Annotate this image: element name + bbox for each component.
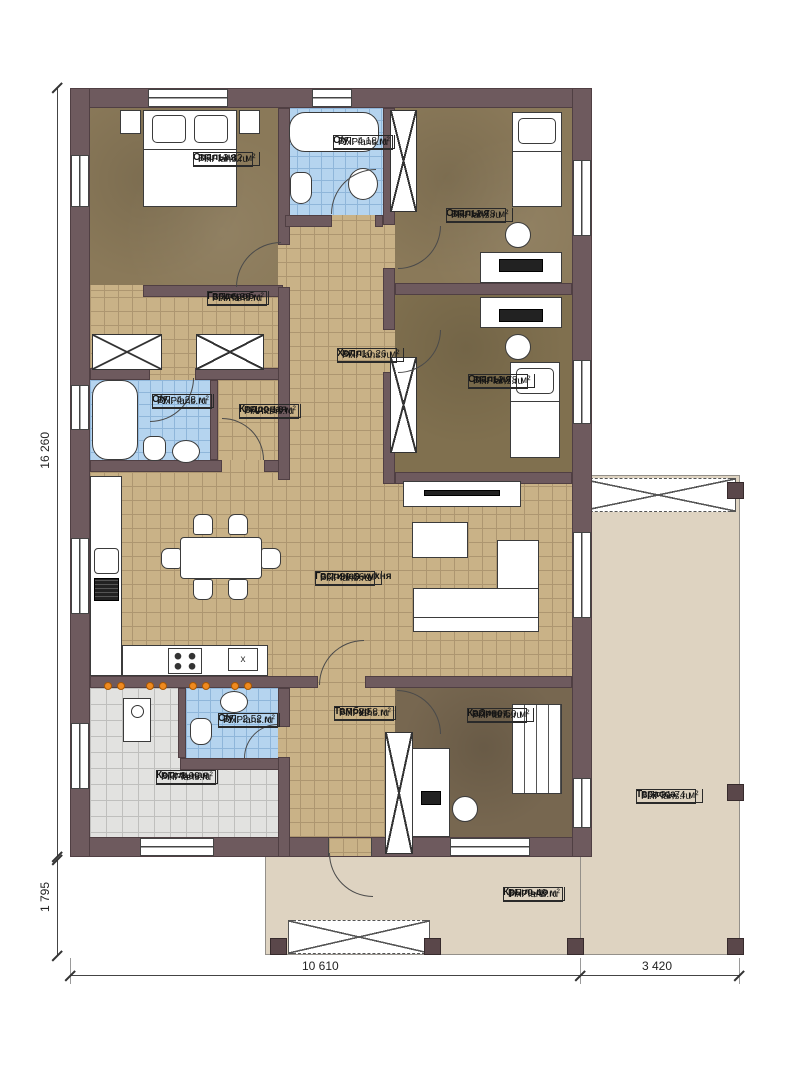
room-area: ВП: 2,52 м² bbox=[218, 713, 280, 727]
wall-storage-divider bbox=[210, 380, 218, 460]
wall-bathtop-hall bbox=[285, 215, 332, 227]
wall-vestibule-left bbox=[278, 757, 290, 857]
desk bbox=[480, 252, 562, 283]
heating-manifold-icon bbox=[231, 682, 239, 690]
chair bbox=[452, 796, 478, 822]
kitchen-counter bbox=[90, 476, 122, 676]
room-area: ВП: 2,16 м² bbox=[239, 404, 301, 418]
toilet bbox=[190, 718, 212, 745]
terrace-floor bbox=[578, 475, 740, 955]
window bbox=[71, 155, 89, 207]
heating-manifold-icon bbox=[146, 682, 154, 690]
room-area: ВП: 8,99 м² bbox=[156, 770, 218, 784]
window bbox=[148, 89, 228, 107]
chair bbox=[228, 579, 248, 600]
chair bbox=[505, 222, 531, 248]
desk bbox=[480, 297, 562, 328]
wall-hall-right bbox=[383, 268, 395, 330]
window bbox=[573, 360, 591, 424]
chair bbox=[161, 548, 181, 569]
tv-console bbox=[403, 481, 521, 507]
bathtub bbox=[92, 380, 138, 460]
room-area: ВП: 10,50 м² bbox=[467, 708, 534, 722]
room-area: ВП: 8,58 м² bbox=[334, 706, 396, 720]
room-area: ВП: 12,78 м² bbox=[446, 208, 513, 222]
dim-line-bottom bbox=[70, 975, 740, 976]
terrace-door bbox=[573, 532, 591, 618]
porch-roof-outline bbox=[288, 920, 430, 954]
heating-manifold-icon bbox=[159, 682, 167, 690]
dim-extension bbox=[580, 958, 581, 984]
toilet bbox=[290, 172, 312, 204]
window bbox=[71, 385, 89, 430]
room-area: ВП: 4,18 м² bbox=[333, 135, 395, 149]
chair bbox=[505, 334, 531, 360]
dim-label-left: 16 260 bbox=[36, 432, 54, 469]
floor-plan: x Спальня FixPlans.ru bbox=[0, 0, 792, 1080]
wall-bathtop-hall bbox=[375, 215, 383, 227]
wardrobe-cabinet bbox=[196, 334, 264, 370]
dim-label-bottom-left: 1 795 bbox=[36, 882, 54, 912]
heating-manifold-icon bbox=[117, 682, 125, 690]
heating-manifold-icon bbox=[202, 682, 210, 690]
porch-column bbox=[424, 938, 441, 955]
wall-hall-left bbox=[278, 287, 290, 480]
wardrobe-cabinet bbox=[92, 334, 162, 370]
sink bbox=[172, 440, 200, 463]
heating-manifold-icon bbox=[244, 682, 252, 690]
dim-extension bbox=[739, 958, 740, 984]
sink bbox=[220, 691, 248, 713]
dim-line-left bbox=[57, 88, 58, 857]
room-area: ВП: 39,56 м² bbox=[315, 571, 382, 585]
window bbox=[71, 538, 89, 614]
desk bbox=[412, 748, 450, 837]
wardrobe-cabinet bbox=[390, 110, 417, 212]
bed bbox=[512, 112, 562, 207]
nightstand bbox=[239, 110, 260, 134]
chair bbox=[261, 548, 281, 569]
wall-living-bottomrow bbox=[365, 676, 572, 688]
room-area: ВП: 12,78 м² bbox=[468, 374, 535, 388]
appliance-x: x bbox=[228, 648, 258, 671]
porch-column bbox=[270, 938, 287, 955]
room-area: ВП: 4,28 м² bbox=[152, 394, 214, 408]
dining-table bbox=[180, 537, 262, 579]
window bbox=[140, 838, 214, 856]
heating-manifold-icon bbox=[189, 682, 197, 690]
heating-manifold-icon bbox=[104, 682, 112, 690]
dim-label-bottom-right: 3 420 bbox=[640, 959, 674, 973]
dim-line-bottom-left bbox=[57, 860, 58, 956]
wall-bathbottom bbox=[180, 758, 285, 770]
kitchen-sink bbox=[94, 548, 119, 574]
kitchen-appliance bbox=[94, 578, 119, 601]
terrace-column bbox=[727, 482, 744, 499]
room-area: ВП: 10,26 м² bbox=[337, 348, 404, 362]
chair bbox=[193, 579, 213, 600]
room-area: ВП: 31,74 м² bbox=[636, 789, 703, 803]
nightstand bbox=[120, 110, 141, 134]
wall-boiler-bath-divider bbox=[178, 688, 186, 758]
dim-label-bottom-main: 10 610 bbox=[300, 959, 341, 973]
room-area: ВП: 13,32 м² bbox=[193, 152, 260, 166]
wall-bedrooms-right bbox=[395, 283, 572, 295]
stove bbox=[168, 648, 202, 674]
porch-column bbox=[567, 938, 584, 955]
boiler bbox=[123, 698, 151, 742]
window bbox=[71, 723, 89, 789]
room-area: ВП: 9,49 м² bbox=[503, 887, 565, 901]
window bbox=[573, 160, 591, 236]
window bbox=[450, 838, 530, 856]
wall-bath-living bbox=[90, 460, 222, 472]
wardrobe-cabinet bbox=[385, 732, 413, 854]
dim-extension bbox=[70, 958, 71, 984]
chair bbox=[228, 514, 248, 535]
room-area: ВП: 6,29 м² bbox=[207, 291, 269, 305]
terrace-roof-outline bbox=[580, 478, 736, 512]
terrace-column bbox=[727, 938, 744, 955]
toilet bbox=[143, 436, 166, 461]
window bbox=[312, 89, 352, 107]
coffee-table bbox=[412, 522, 468, 558]
appliance-x-mark: x bbox=[241, 654, 246, 665]
terrace-column bbox=[727, 784, 744, 801]
chair bbox=[193, 514, 213, 535]
sofa-section bbox=[413, 588, 539, 632]
window bbox=[573, 778, 591, 828]
